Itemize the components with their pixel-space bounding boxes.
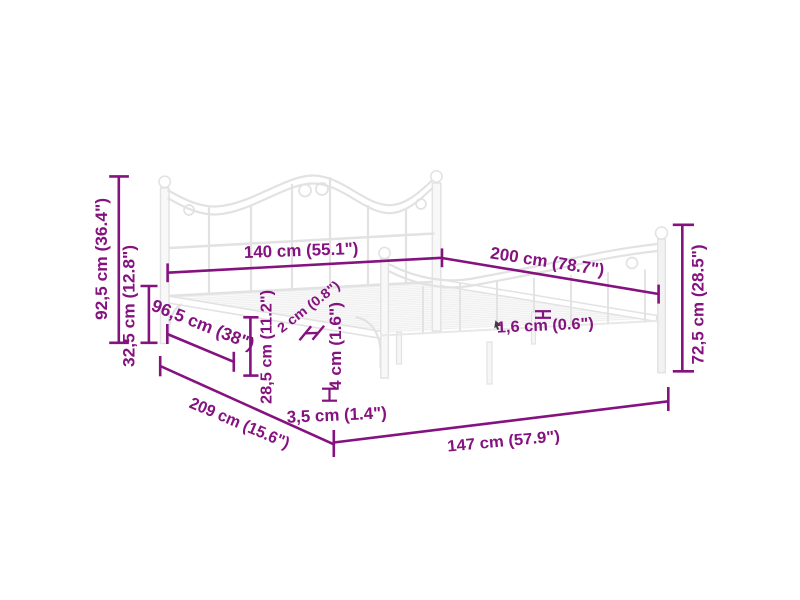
svg-text:92,5 cm (36.4"): 92,5 cm (36.4") [92, 198, 111, 320]
svg-text:4 cm (1.6"): 4 cm (1.6") [327, 302, 345, 390]
svg-text:32,5 cm (12.8"): 32,5 cm (12.8") [120, 245, 139, 367]
svg-text:28,5 cm (11.2"): 28,5 cm (11.2") [259, 290, 276, 404]
svg-text:72,5 cm (28.5"): 72,5 cm (28.5") [689, 245, 708, 365]
svg-text:140 cm (55.1"): 140 cm (55.1") [244, 239, 359, 262]
